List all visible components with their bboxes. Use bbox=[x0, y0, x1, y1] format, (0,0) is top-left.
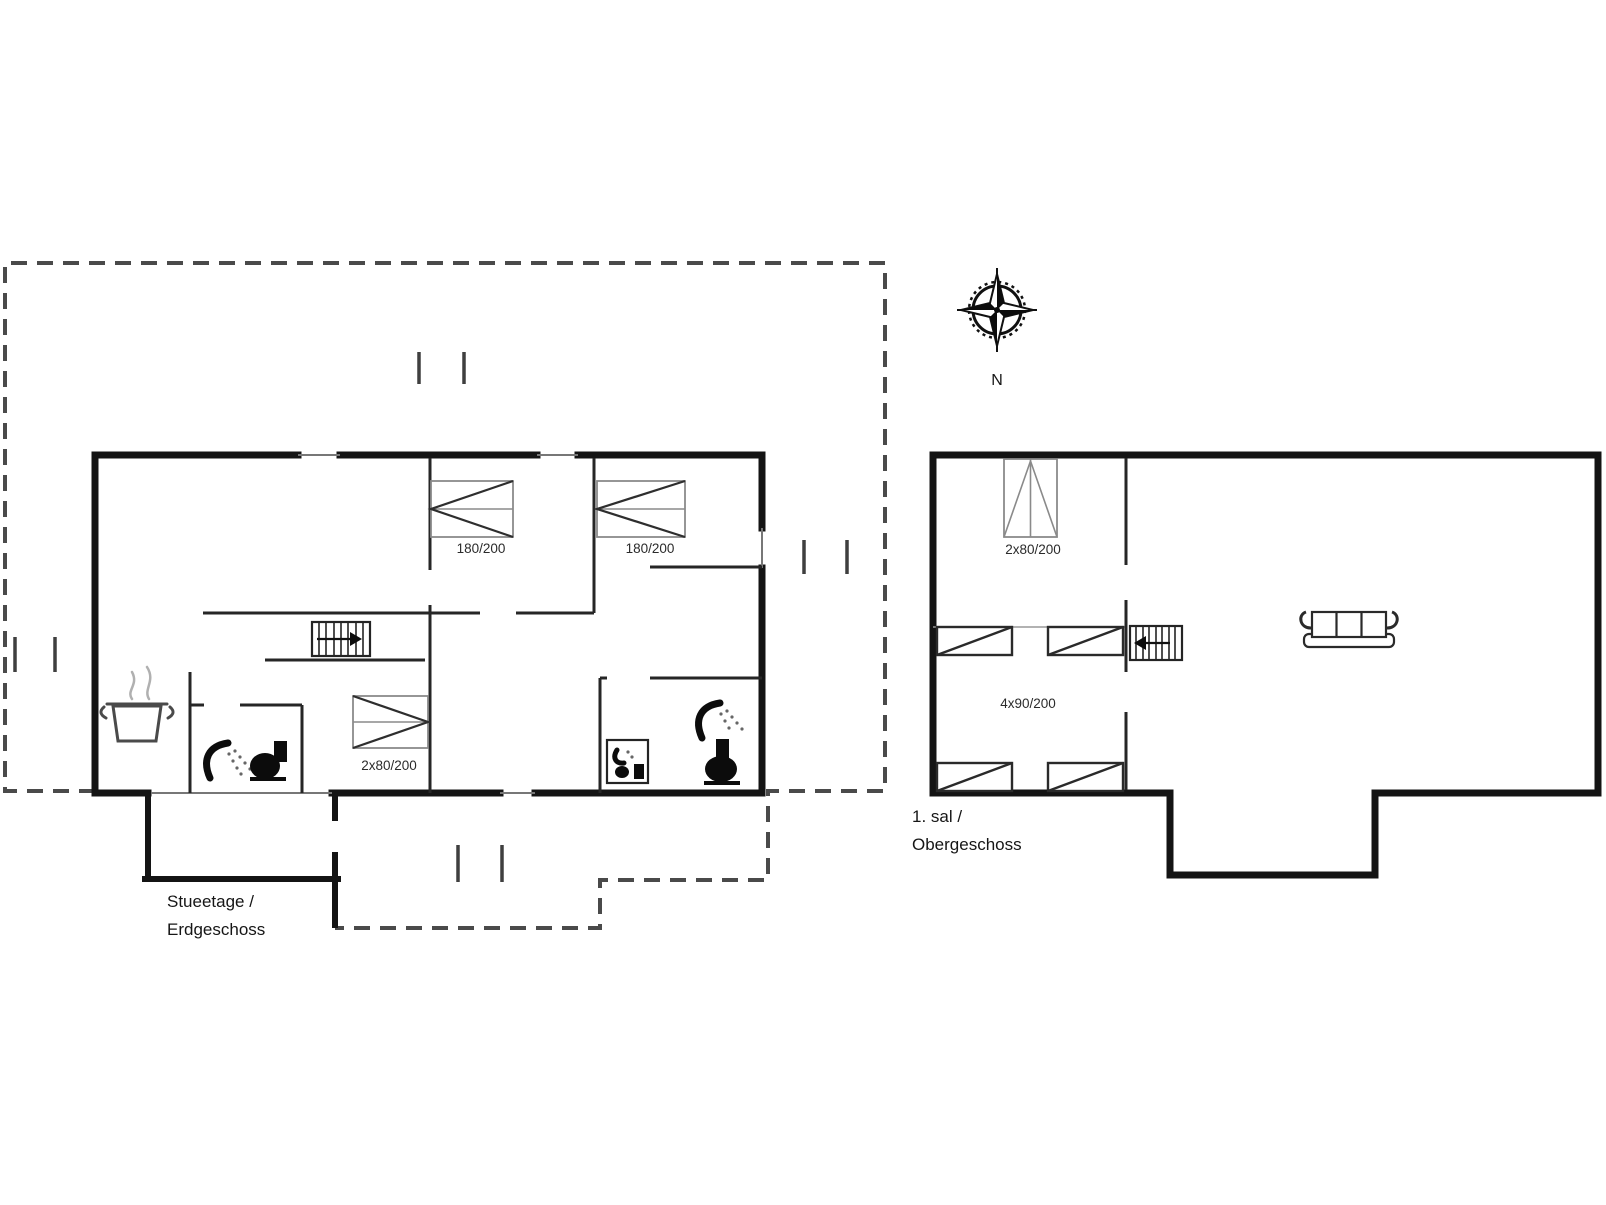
sofa-icon bbox=[1301, 612, 1397, 647]
compass-rose-icon: N bbox=[957, 268, 1037, 389]
first-floor-label-line2: Obergeschoss bbox=[912, 835, 1022, 854]
single-bed-1 bbox=[937, 627, 1012, 655]
first-floor-label-line1: 1. sal / bbox=[912, 807, 962, 826]
stairs-icon-2 bbox=[1130, 626, 1182, 660]
first-floor-double-bed-label: 2x80/200 bbox=[1005, 542, 1061, 557]
first-floor-double-bed: 2x80/200 bbox=[1004, 459, 1061, 557]
bed2-size-label: 180/200 bbox=[626, 541, 675, 556]
terrace-outline bbox=[5, 263, 885, 928]
first-floor-plan: 2x80/200 4x90/200 bbox=[912, 455, 1598, 875]
double-bed-2: 180/200 bbox=[597, 481, 685, 556]
ground-floor-label-line1: Stueetage / bbox=[167, 892, 254, 911]
toilet-icon-2 bbox=[704, 739, 740, 785]
north-label: N bbox=[991, 372, 1003, 389]
washbasin-icon bbox=[607, 740, 648, 783]
shower-icon-2 bbox=[699, 703, 744, 738]
ground-floor-plan: 180/200 180/200 2x80/200 bbox=[95, 455, 762, 939]
bunk-size-label: 2x80/200 bbox=[361, 758, 417, 773]
floorplan-drawing: 180/200 180/200 2x80/200 bbox=[0, 0, 1606, 1205]
ground-floor-label-line2: Erdgeschoss bbox=[167, 920, 265, 939]
bed1-size-label: 180/200 bbox=[457, 541, 506, 556]
shower-icon bbox=[207, 743, 252, 778]
single-bed-3 bbox=[937, 763, 1012, 791]
bunk-bed: 2x80/200 bbox=[353, 696, 428, 773]
stairs-icon bbox=[312, 622, 370, 656]
single-bed-4 bbox=[1048, 763, 1123, 791]
single-beds-label: 4x90/200 bbox=[1000, 696, 1056, 711]
toilet-icon bbox=[250, 741, 287, 781]
cooking-pot-icon bbox=[101, 667, 173, 741]
double-bed-1: 180/200 bbox=[431, 481, 513, 556]
floorplan-page: 180/200 180/200 2x80/200 bbox=[0, 0, 1606, 1205]
single-bed-2 bbox=[1048, 627, 1123, 655]
